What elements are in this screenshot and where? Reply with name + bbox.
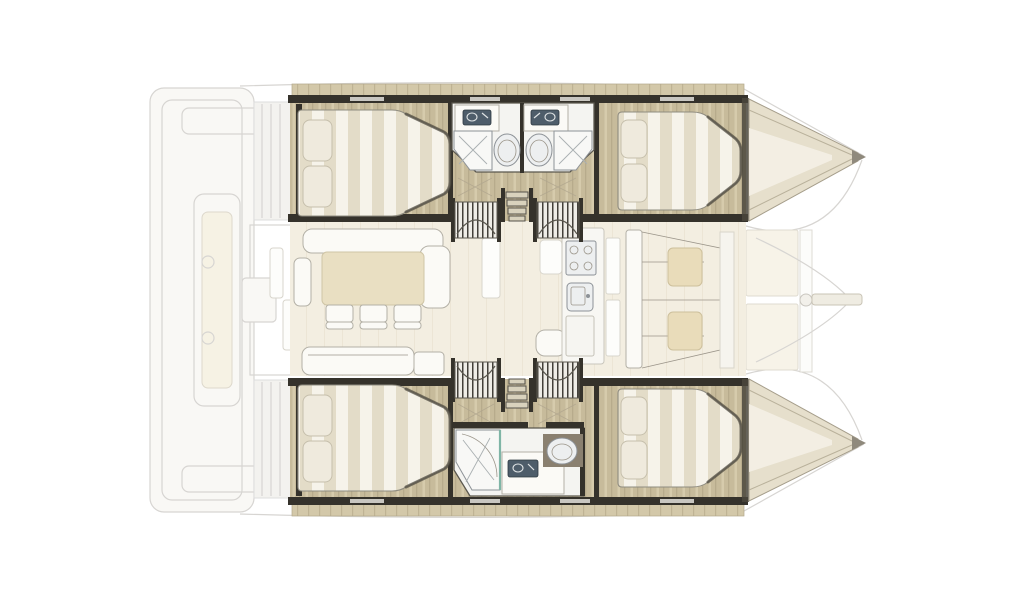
foredeck-panel bbox=[746, 230, 798, 296]
hull-window bbox=[470, 499, 500, 503]
hull-bottom bbox=[288, 358, 866, 516]
saloon bbox=[290, 220, 746, 376]
side-table bbox=[414, 352, 444, 375]
sliding-door bbox=[270, 248, 283, 298]
pillow bbox=[303, 166, 332, 207]
dining-chair bbox=[394, 305, 421, 329]
floor-plan-canvas bbox=[0, 0, 1024, 600]
hull-window bbox=[560, 97, 590, 101]
bathrooms-top bbox=[452, 103, 594, 173]
lounge-cushion bbox=[668, 312, 702, 350]
forward-cabin-top bbox=[618, 112, 741, 210]
crossbeam-hub bbox=[800, 294, 812, 306]
lounge-cushion bbox=[668, 248, 702, 286]
dining-chairs bbox=[326, 305, 421, 329]
galley-cabinet bbox=[566, 316, 594, 356]
forward-door-panel bbox=[606, 300, 620, 356]
hull-top bbox=[288, 84, 866, 242]
cockpit-bench-cushion bbox=[202, 212, 232, 388]
forward-cabin-bottom bbox=[618, 389, 741, 487]
walkway-panel bbox=[482, 238, 500, 298]
aft-cabin-bottom bbox=[298, 385, 450, 491]
hull-inner-wall bbox=[581, 214, 748, 222]
pillow bbox=[621, 164, 647, 202]
washbasin bbox=[531, 110, 559, 125]
hull-window bbox=[350, 499, 384, 503]
pillow bbox=[303, 120, 332, 161]
washbasin bbox=[463, 110, 491, 125]
walkway-panel bbox=[540, 240, 562, 274]
foredeck bbox=[746, 230, 862, 372]
hull-window bbox=[350, 97, 384, 101]
hull-inner-wall bbox=[581, 378, 748, 386]
forward-step bbox=[720, 232, 734, 368]
dining-chair bbox=[326, 305, 353, 329]
lounge-backrest bbox=[626, 230, 642, 368]
cabin-bulkhead bbox=[594, 99, 599, 217]
bow-top bbox=[742, 98, 866, 221]
bow-tip bbox=[852, 150, 866, 164]
bathroom-bottom bbox=[452, 422, 585, 496]
dining-table bbox=[322, 252, 424, 305]
forward-door-panel bbox=[606, 238, 620, 294]
cabin-bulkhead bbox=[594, 383, 599, 501]
floor-plan-svg bbox=[0, 0, 1024, 600]
bow-bottom bbox=[742, 379, 866, 502]
pillow bbox=[303, 395, 332, 436]
side-bench bbox=[294, 258, 311, 306]
stove bbox=[566, 241, 596, 275]
pillow bbox=[621, 441, 647, 479]
aft-cabin-top bbox=[298, 110, 450, 216]
bow-bulkhead-shadow bbox=[742, 379, 749, 502]
pillow bbox=[303, 441, 332, 482]
hull-window bbox=[470, 97, 500, 101]
hull-window bbox=[560, 499, 590, 503]
washbasin bbox=[508, 460, 538, 477]
pillow bbox=[621, 397, 647, 435]
bowsprit bbox=[812, 294, 862, 305]
hull-window bbox=[660, 97, 694, 101]
hull-window bbox=[660, 499, 694, 503]
bow-tip bbox=[852, 436, 866, 450]
dining-chair bbox=[360, 305, 387, 329]
bathroom-divider-wall bbox=[520, 103, 524, 173]
galley-sink bbox=[567, 283, 593, 311]
bow-bulkhead-shadow bbox=[742, 98, 749, 221]
foredeck-panel bbox=[746, 304, 798, 370]
pillow bbox=[621, 120, 647, 158]
